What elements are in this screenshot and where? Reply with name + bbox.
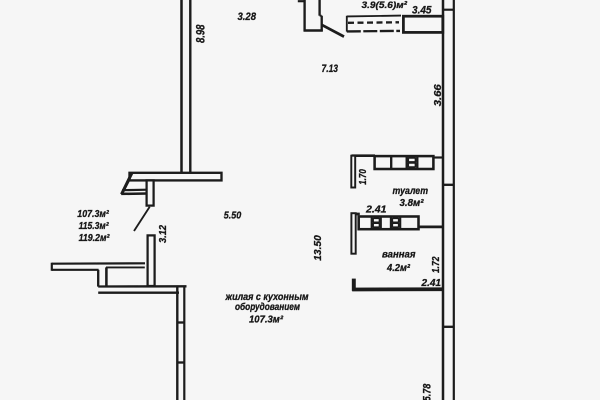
svg-text:2.41: 2.41 xyxy=(421,277,442,289)
svg-text:3.9(5.6)м²: 3.9(5.6)м² xyxy=(362,0,408,11)
svg-text:5.50: 5.50 xyxy=(224,210,242,222)
svg-text:4.2м²: 4.2м² xyxy=(386,262,410,274)
svg-text:оборудованием: оборудованием xyxy=(235,301,300,313)
svg-text:2.41: 2.41 xyxy=(365,204,387,216)
svg-text:3.45: 3.45 xyxy=(412,4,432,16)
svg-text:3.66: 3.66 xyxy=(432,84,444,106)
svg-text:ванная: ванная xyxy=(382,249,416,261)
svg-text:119.2м²: 119.2м² xyxy=(79,233,110,244)
svg-text:13.50: 13.50 xyxy=(313,235,324,261)
svg-text:3.12: 3.12 xyxy=(158,225,169,243)
svg-text:7.13: 7.13 xyxy=(322,63,339,75)
svg-text:3.8м²: 3.8м² xyxy=(400,197,424,209)
svg-text:1.70: 1.70 xyxy=(358,169,369,185)
svg-text:107.3м²: 107.3м² xyxy=(249,314,284,325)
svg-text:5.78: 5.78 xyxy=(422,383,434,400)
svg-text:8.98: 8.98 xyxy=(195,24,207,43)
svg-text:115.3м²: 115.3м² xyxy=(79,221,110,232)
svg-text:туалет: туалет xyxy=(393,185,429,197)
svg-text:1.72: 1.72 xyxy=(431,256,442,273)
svg-text:3.28: 3.28 xyxy=(238,11,257,23)
svg-text:107.3м²: 107.3м² xyxy=(77,209,109,220)
